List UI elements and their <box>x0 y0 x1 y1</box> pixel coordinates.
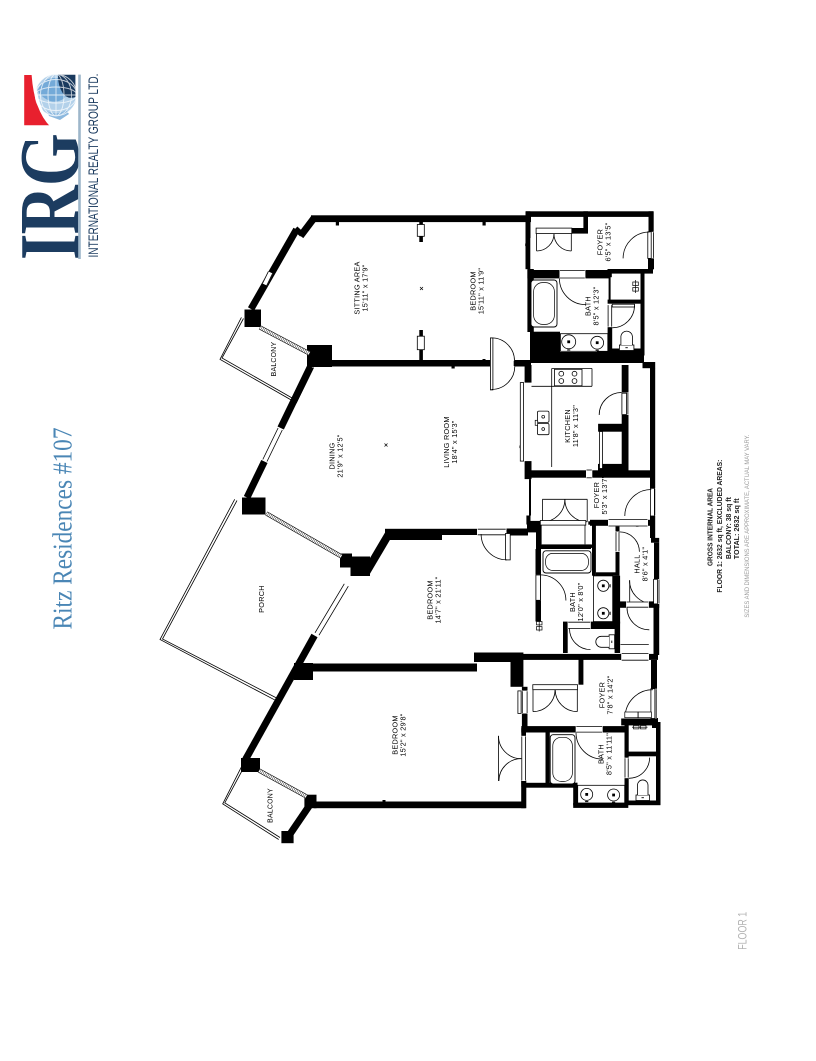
svg-text:SIZES AND DIMENSIONS ARE APPRO: SIZES AND DIMENSIONS ARE APPROXIMATE, AC… <box>744 435 751 618</box>
svg-text:8'5" x 11'11": 8'5" x 11'11" <box>605 733 614 775</box>
svg-text:8'5" x 12'3": 8'5" x 12'3" <box>592 286 601 325</box>
svg-text:7'8" x 14'2": 7'8" x 14'2" <box>606 675 615 714</box>
svg-text:21'9" x 12'5": 21'9" x 12'5" <box>336 434 345 477</box>
svg-text:12'0" x 8'0": 12'0" x 8'0" <box>576 582 585 621</box>
svg-text:IRG: IRG <box>2 134 98 260</box>
svg-text:FLOOR 1: 2632 sq ft, EXCLUDED: FLOOR 1: 2632 sq ft, EXCLUDED AREAS: <box>715 460 724 593</box>
svg-text:GROSS INTERNAL AREA: GROSS INTERNAL AREA <box>706 487 715 566</box>
svg-text:Ritz Residences #107: Ritz Residences #107 <box>48 428 78 630</box>
svg-text:18'4" x 15'3": 18'4" x 15'3" <box>450 420 459 463</box>
svg-text:BALCONY: BALCONY <box>267 788 274 823</box>
svg-text:6'5" x 13'5": 6'5" x 13'5" <box>604 222 613 261</box>
svg-text:5'3" x 13'7": 5'3" x 13'7" <box>600 475 609 514</box>
svg-text:11'8" x 11'3": 11'8" x 11'3" <box>571 405 580 447</box>
svg-text:15'11" x 17'9": 15'11" x 17'9" <box>361 264 370 311</box>
svg-text:INTERNATIONAL REALTY GROUP LTD: INTERNATIONAL REALTY GROUP LTD. <box>86 74 101 258</box>
svg-text:TOTAL: 2632 sq ft: TOTAL: 2632 sq ft <box>732 498 741 560</box>
svg-text:BALCONY: BALCONY <box>271 342 278 377</box>
svg-text:8'6" x 4'1": 8'6" x 4'1" <box>641 547 650 582</box>
svg-text:15'11" x 11'9": 15'11" x 11'9" <box>477 268 486 315</box>
svg-text:15'2" x 29'8": 15'2" x 29'8" <box>399 713 408 756</box>
svg-text:FLOOR 1: FLOOR 1 <box>736 912 750 950</box>
svg-text:14'7" x 21'11": 14'7" x 21'11" <box>434 576 443 623</box>
svg-text:PORCH: PORCH <box>257 585 266 613</box>
